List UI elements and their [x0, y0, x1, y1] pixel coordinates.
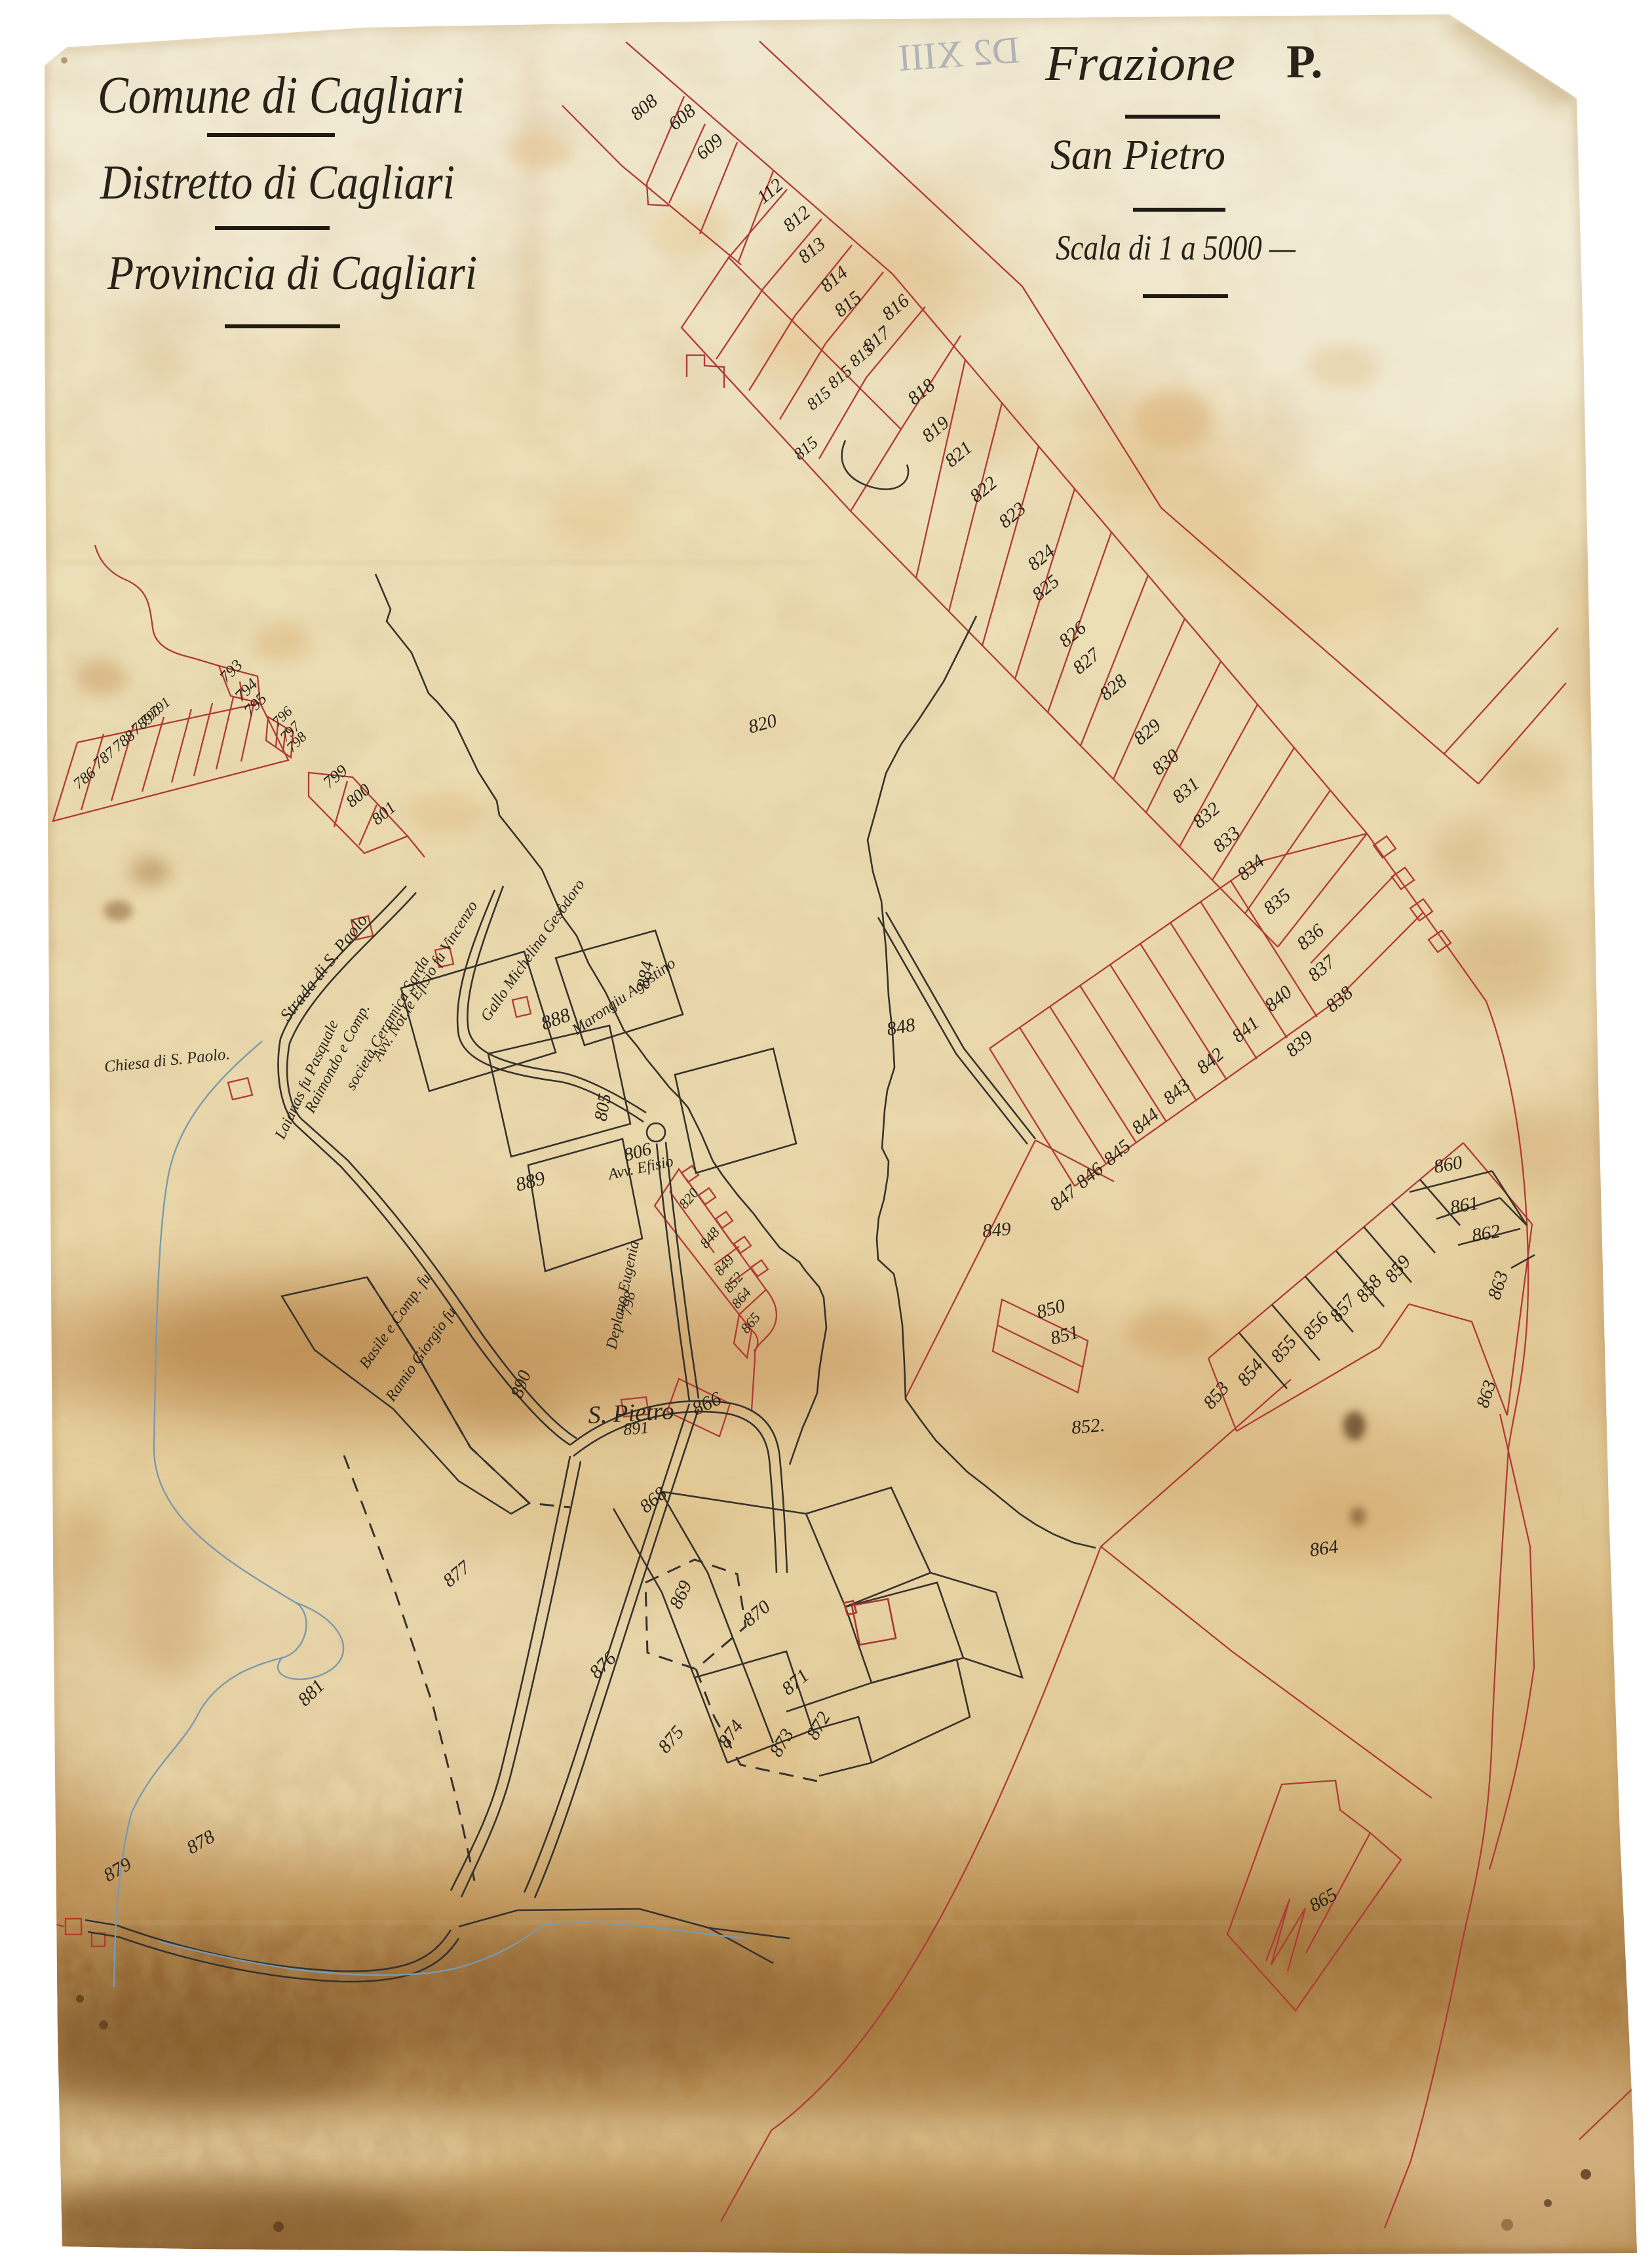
svg-text:849: 849	[982, 1218, 1012, 1242]
svg-text:Provincia di Cagliari: Provincia di Cagliari	[107, 246, 477, 300]
svg-text:D2 XIII: D2 XIII	[897, 28, 1021, 79]
svg-text:Distretto di Cagliari: Distretto di Cagliari	[100, 156, 455, 210]
svg-text:864: 864	[1309, 1536, 1340, 1561]
svg-text:P.: P.	[1286, 35, 1322, 88]
svg-text:Frazione: Frazione	[1045, 36, 1235, 91]
svg-text:San Pietro: San Pietro	[1050, 131, 1225, 179]
svg-text:852.: 852.	[1071, 1415, 1105, 1438]
svg-text:Scala di 1 a 5000 —: Scala di 1 a 5000 —	[1056, 228, 1296, 267]
svg-text:Comune di Cagliari: Comune di Cagliari	[98, 67, 465, 125]
svg-text:S. Pietro: S. Pietro	[587, 1397, 675, 1429]
